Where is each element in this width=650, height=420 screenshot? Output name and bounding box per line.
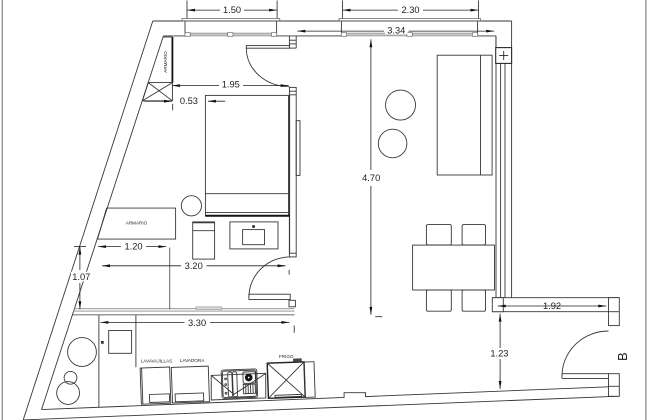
svg-text:LAVAVAJILLAS: LAVAVAJILLAS [141,359,172,364]
svg-text:1.20: 1.20 [124,242,142,252]
svg-text:2.30: 2.30 [401,5,419,15]
svg-text:FRIGO: FRIGO [279,354,294,359]
svg-text:4.70: 4.70 [362,173,380,183]
svg-text:3.34: 3.34 [387,26,405,36]
svg-text:3.30: 3.30 [188,318,206,328]
svg-text:ARMARIO: ARMARIO [163,51,168,73]
svg-text:3.20: 3.20 [185,261,203,271]
svg-text:B: B [615,352,630,361]
svg-text:1.92: 1.92 [543,301,561,311]
svg-text:1.95: 1.95 [222,80,240,90]
svg-text:0.53: 0.53 [180,96,198,106]
svg-text:1.50: 1.50 [223,5,241,15]
svg-text:ARMARIO: ARMARIO [126,221,148,226]
svg-text:1.07: 1.07 [72,272,90,282]
svg-text:LAVADORA: LAVADORA [180,358,205,363]
svg-text:1.23: 1.23 [490,349,508,359]
